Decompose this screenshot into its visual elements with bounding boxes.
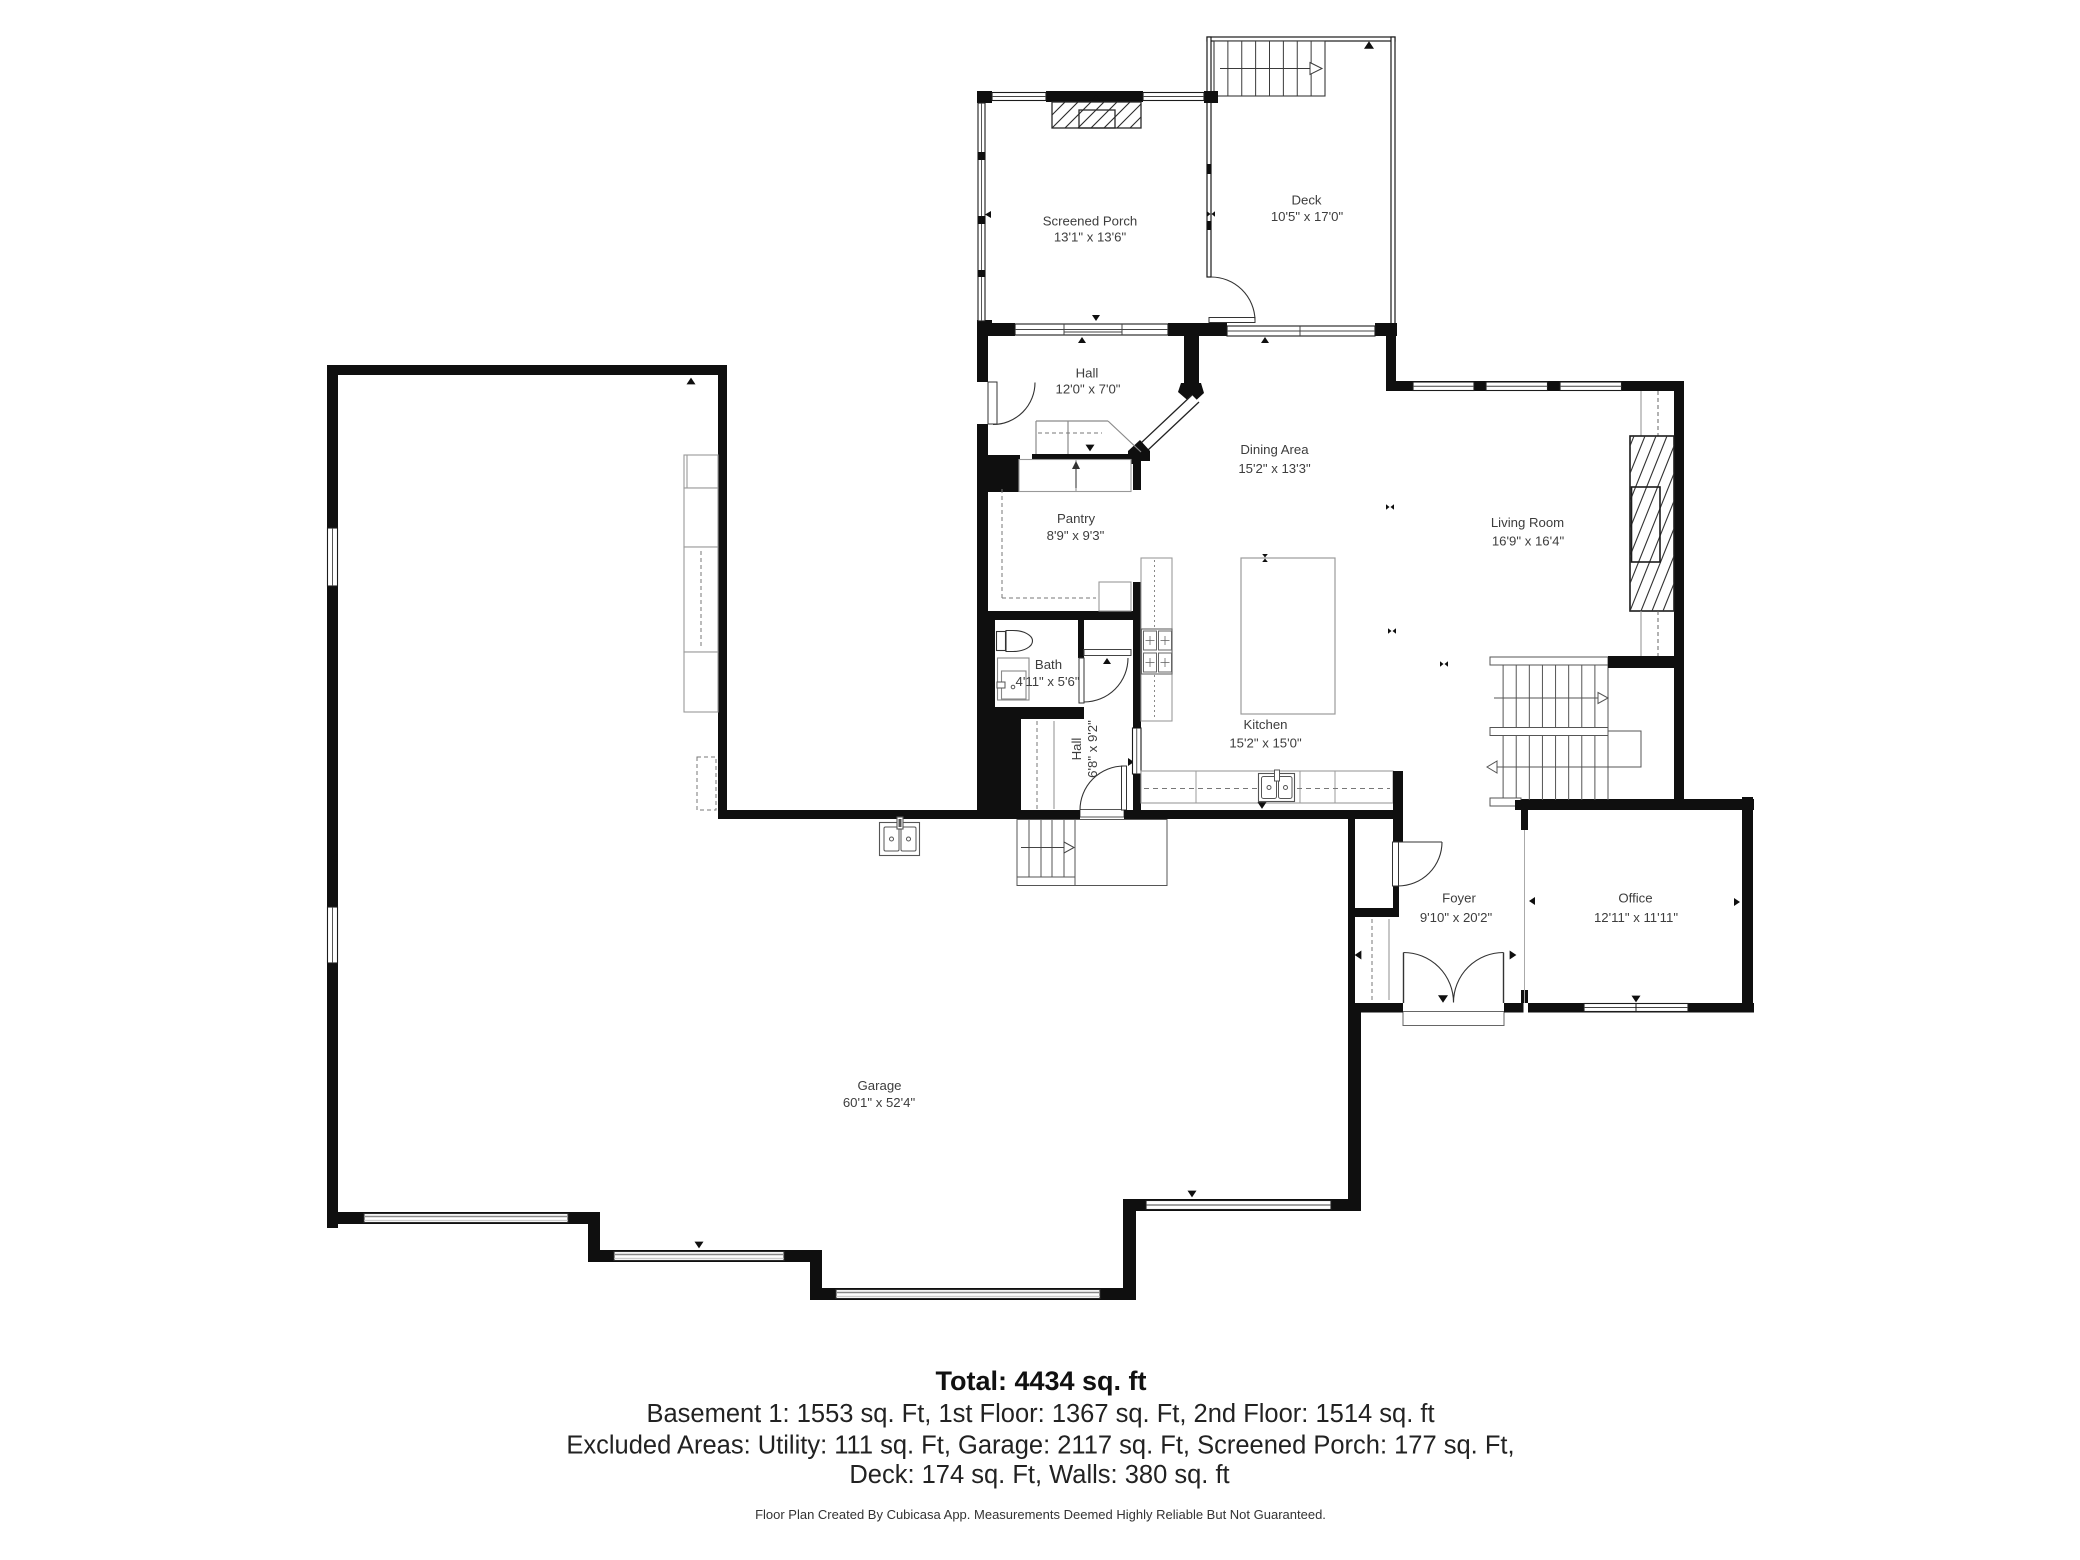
svg-text:4'11" x 5'6": 4'11" x 5'6" [1015, 674, 1079, 689]
svg-text:15'2" x 15'0": 15'2" x 15'0" [1229, 736, 1302, 751]
svg-text:Floor Plan Created By Cubicasa: Floor Plan Created By Cubicasa App. Meas… [755, 1507, 1326, 1522]
svg-text:Deck: Deck [1291, 193, 1321, 208]
svg-text:Foyer: Foyer [1442, 891, 1476, 906]
svg-text:Screened Porch: Screened Porch [1043, 214, 1138, 229]
svg-text:9'10" x 20'2": 9'10" x 20'2" [1420, 910, 1493, 925]
svg-text:Pantry: Pantry [1057, 511, 1096, 526]
svg-text:8'9" x 9'3": 8'9" x 9'3" [1047, 528, 1105, 543]
svg-text:6'8" x 9'2": 6'8" x 9'2" [1085, 720, 1100, 778]
svg-text:60'1" x 52'4": 60'1" x 52'4" [843, 1095, 916, 1110]
svg-text:Kitchen: Kitchen [1244, 717, 1288, 732]
svg-text:Dining Area: Dining Area [1240, 442, 1309, 457]
svg-text:Basement 1: 1553 sq. Ft, 1st F: Basement 1: 1553 sq. Ft, 1st Floor: 1367… [646, 1400, 1434, 1428]
svg-text:Hall: Hall [1069, 738, 1084, 761]
svg-text:Garage: Garage [858, 1078, 902, 1093]
svg-text:Office: Office [1618, 891, 1652, 906]
svg-text:Hall: Hall [1076, 366, 1099, 381]
svg-text:12'0" x 7'0": 12'0" x 7'0" [1056, 382, 1121, 397]
svg-text:16'9" x 16'4": 16'9" x 16'4" [1492, 534, 1565, 549]
svg-text:12'11" x 11'11": 12'11" x 11'11" [1594, 910, 1678, 925]
svg-text:Deck: 174 sq. Ft, Walls: 380 s: Deck: 174 sq. Ft, Walls: 380 sq. ft [849, 1461, 1229, 1489]
svg-text:13'1" x 13'6": 13'1" x 13'6" [1054, 230, 1127, 245]
svg-text:Living Room: Living Room [1491, 515, 1564, 530]
svg-text:Total: 4434 sq. ft: Total: 4434 sq. ft [935, 1366, 1146, 1396]
svg-text:Bath: Bath [1035, 657, 1062, 672]
svg-text:15'2" x 13'3": 15'2" x 13'3" [1238, 461, 1311, 476]
svg-text:10'5" x 17'0": 10'5" x 17'0" [1271, 209, 1344, 224]
svg-text:Excluded Areas: Utility: 111 s: Excluded Areas: Utility: 111 sq. Ft, Gar… [566, 1432, 1514, 1460]
